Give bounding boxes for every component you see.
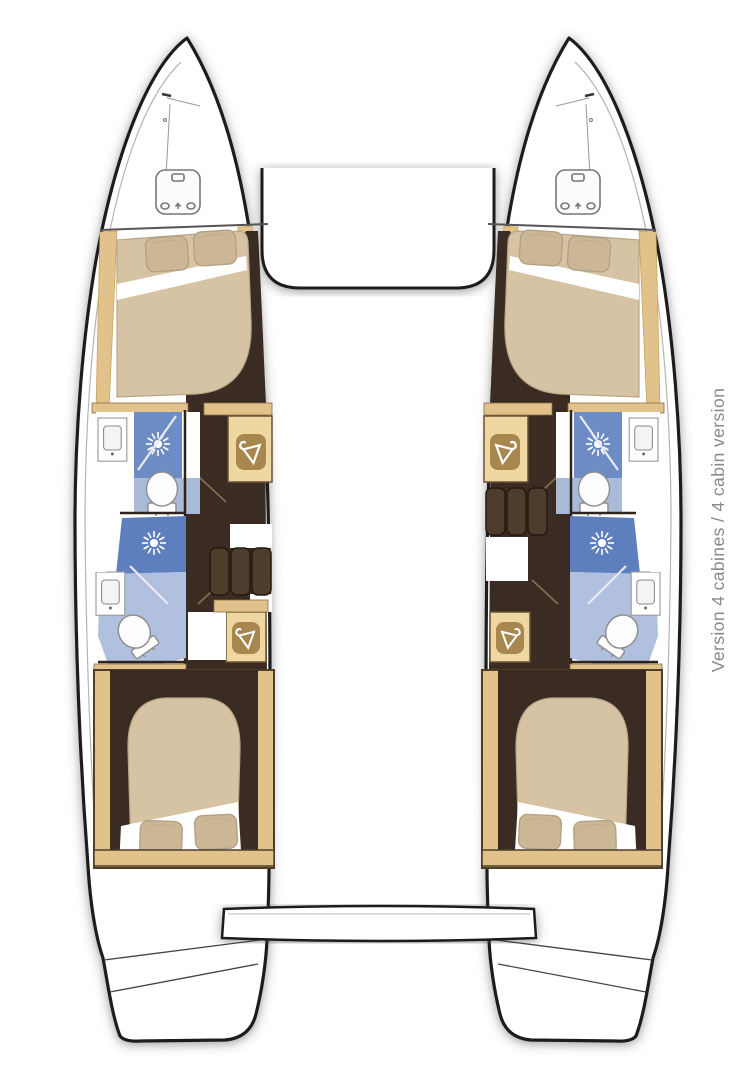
aft-platform — [222, 906, 536, 941]
floor-plan-canvas: Version 4 cabines / 4 cabin version — [0, 0, 756, 1080]
catamaran-floor-plan: Version 4 cabines / 4 cabin version — [0, 0, 756, 1080]
foredeck-bridge — [262, 168, 494, 288]
version-caption: Version 4 cabines / 4 cabin version — [708, 388, 728, 672]
